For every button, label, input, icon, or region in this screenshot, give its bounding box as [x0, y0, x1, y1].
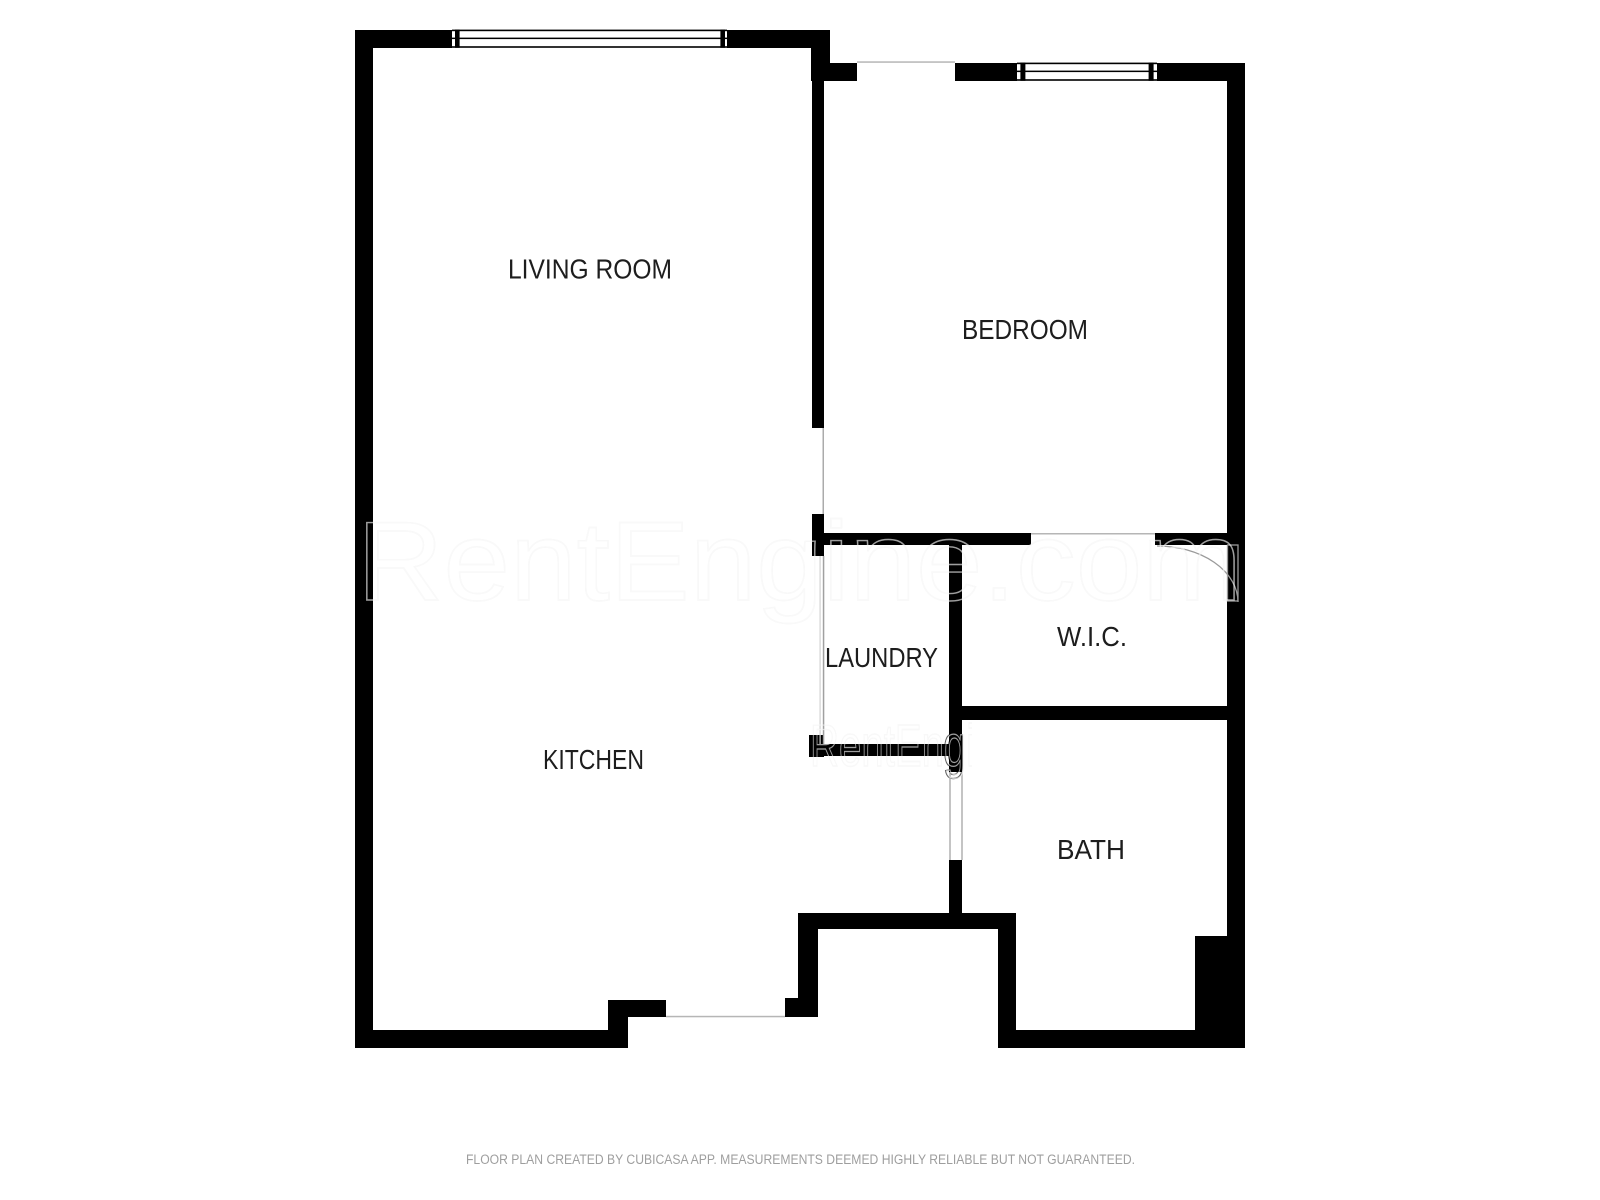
svg-text:FLOOR PLAN CREATED BY CUBICASA: FLOOR PLAN CREATED BY CUBICASA APP. MEAS… [466, 1152, 1135, 1167]
svg-text:BATH: BATH [1057, 834, 1125, 865]
svg-text:BEDROOM: BEDROOM [962, 314, 1088, 345]
svg-text:W.I.C.: W.I.C. [1057, 621, 1127, 652]
svg-text:RentEngine.com: RentEngine.com [357, 499, 1242, 624]
svg-text:KITCHEN: KITCHEN [543, 744, 644, 775]
svg-text:LIVING ROOM: LIVING ROOM [508, 254, 672, 285]
svg-text:LAUNDRY: LAUNDRY [825, 642, 938, 673]
svg-text:RentEngine.com: RentEngine.com [810, 713, 1107, 779]
